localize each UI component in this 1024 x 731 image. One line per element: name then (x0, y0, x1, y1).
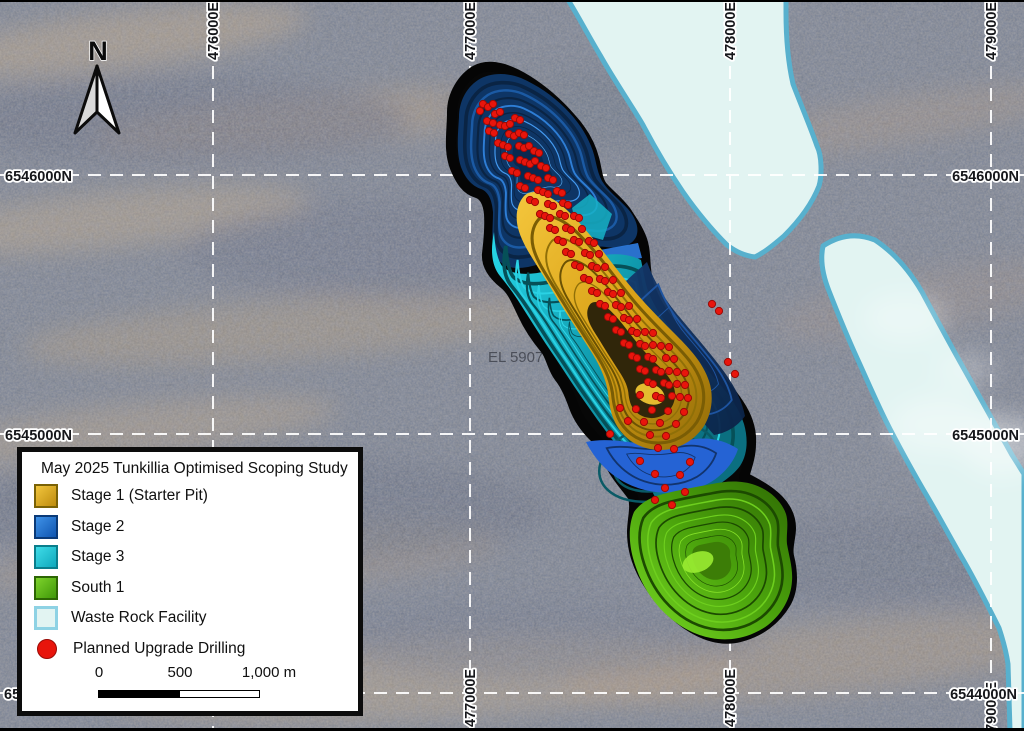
drill-point (636, 457, 643, 464)
drill-point (616, 404, 623, 411)
drill-point (476, 107, 483, 114)
tenement-label: EL 5907 (488, 349, 543, 366)
drill-point (676, 393, 683, 400)
drill-point (715, 307, 722, 314)
grid-label-northing: 6545000N (952, 428, 1019, 444)
drill-point (708, 300, 715, 307)
map-frame-top (0, 0, 1024, 2)
grid-label-northing: 6544000N (950, 687, 1017, 703)
drill-point (665, 343, 672, 350)
scale-bar-black-segment (99, 691, 179, 697)
drill-point (651, 470, 658, 477)
grid-label-northing: 6545000N (5, 428, 72, 444)
drill-point (575, 214, 582, 221)
drill-point (672, 420, 679, 427)
drill-point (521, 184, 528, 191)
drill-point (549, 202, 556, 209)
drill-point (490, 129, 497, 136)
drill-point (641, 342, 648, 349)
stage3-swatch (34, 545, 58, 569)
drill-point (670, 355, 677, 362)
north-arrow-label: N (88, 36, 108, 66)
drill-point (662, 432, 669, 439)
drill-point (625, 316, 632, 323)
drill-point (731, 370, 738, 377)
drill-point (651, 496, 658, 503)
drill-point (531, 198, 538, 205)
drill-point (662, 354, 669, 361)
drill-point (649, 355, 656, 362)
drill-point (624, 417, 631, 424)
drill-point (567, 250, 574, 257)
drill-point (544, 190, 551, 197)
drill-point (513, 169, 520, 176)
grid-label-easting: 476000E (206, 2, 222, 60)
drill-point (632, 405, 639, 412)
drill-point (633, 329, 640, 336)
drill-point (535, 149, 542, 156)
grid-label-easting: 478000E (723, 669, 739, 727)
drill-point (575, 238, 582, 245)
drill-point (590, 239, 597, 246)
drilling-swatch (37, 639, 57, 659)
south1-swatch (34, 576, 58, 600)
drill-point (558, 189, 565, 196)
scale-bar-white-segment (179, 691, 260, 697)
grid-label-northing: 6546000N (5, 169, 72, 185)
drill-point (668, 501, 675, 508)
drill-point (506, 154, 513, 161)
legend-item-label: Waste Rock Facility (71, 609, 207, 627)
drill-point (595, 250, 602, 257)
grid-label-easting: 478000E (723, 2, 739, 60)
drill-point (617, 328, 624, 335)
drill-point (640, 418, 647, 425)
drill-point (593, 264, 600, 271)
map-canvas: EL 5907 (0, 0, 1024, 731)
legend-item-wrf: Waste Rock Facility (34, 605, 207, 631)
drill-point (609, 315, 616, 322)
drill-point (625, 302, 632, 309)
drill-point (576, 263, 583, 270)
drill-point (681, 369, 688, 376)
drill-point (561, 212, 568, 219)
grid-label-easting: 477000E (463, 2, 479, 60)
drill-point (585, 276, 592, 283)
drill-point (496, 108, 503, 115)
drill-point (668, 392, 675, 399)
drill-point (676, 471, 683, 478)
scalebar-label-500: 500 (167, 664, 192, 681)
drill-point (551, 226, 558, 233)
drill-point (657, 342, 664, 349)
drill-point (531, 157, 538, 164)
drill-point (670, 445, 677, 452)
drill-point (641, 367, 648, 374)
drill-point (665, 367, 672, 374)
scalebar-label-0: 0 (95, 664, 103, 681)
drill-point (657, 368, 664, 375)
drill-point (656, 419, 663, 426)
legend-item-stage2: Stage 2 (34, 514, 124, 540)
drill-point (680, 408, 687, 415)
drill-point (617, 303, 624, 310)
scalebar-label-1000: 1,000 m (242, 664, 296, 681)
drill-point (559, 238, 566, 245)
legend-item-drilling: Planned Upgrade Drilling (34, 636, 245, 662)
drill-point (661, 484, 668, 491)
drill-point (673, 368, 680, 375)
grid-label-easting: 477000E (463, 669, 479, 727)
legend-item-stage3: Stage 3 (34, 544, 124, 570)
drill-point (641, 328, 648, 335)
legend-panel: May 2025 Tunkillia Optimised Scoping Stu… (17, 447, 363, 716)
drill-point (504, 143, 511, 150)
drill-point (633, 354, 640, 361)
drill-point (633, 315, 640, 322)
drill-point (601, 263, 608, 270)
drill-point (649, 329, 656, 336)
drill-point (609, 290, 616, 297)
legend-item-label: Stage 2 (71, 518, 124, 536)
scale-bar (98, 690, 260, 698)
drill-point (657, 394, 664, 401)
legend-item-label: South 1 (71, 579, 124, 597)
drill-point (546, 214, 553, 221)
legend-item-label: Stage 1 (Starter Pit) (71, 487, 208, 505)
drill-point (520, 131, 527, 138)
drill-point (586, 251, 593, 258)
drill-point (516, 116, 523, 123)
drill-point (593, 289, 600, 296)
drill-point (673, 380, 680, 387)
grid-label-northing: 6546000N (952, 169, 1019, 185)
drill-point (601, 302, 608, 309)
drill-point (649, 380, 656, 387)
drill-point (617, 289, 624, 296)
drill-point (564, 201, 571, 208)
drill-point (489, 119, 496, 126)
drill-point (681, 381, 688, 388)
drill-point (684, 394, 691, 401)
waste-rock-swatch (34, 606, 58, 630)
legend-title: May 2025 Tunkillia Optimised Scoping Stu… (41, 460, 348, 478)
stage2-swatch (34, 515, 58, 539)
legend-item-south1: South 1 (34, 575, 124, 601)
drill-point (649, 341, 656, 348)
drill-point (646, 431, 653, 438)
drill-point (606, 430, 613, 437)
drill-point (664, 407, 671, 414)
stage1-swatch (34, 484, 58, 508)
drill-point (681, 488, 688, 495)
drill-point (601, 277, 608, 284)
drill-point (648, 406, 655, 413)
legend-item-label: Planned Upgrade Drilling (73, 640, 245, 658)
drill-point (489, 100, 496, 107)
drill-point (636, 391, 643, 398)
drill-point (609, 276, 616, 283)
drill-point (578, 225, 585, 232)
legend-item-label: Stage 3 (71, 548, 124, 566)
drill-point (665, 381, 672, 388)
legend-item-stage1: Stage 1 (Starter Pit) (34, 483, 208, 509)
drill-point (686, 458, 693, 465)
drill-point (534, 176, 541, 183)
drill-point (567, 226, 574, 233)
grid-label-easting: 479000E (984, 2, 1000, 60)
drill-point (506, 120, 513, 127)
drill-point (724, 358, 731, 365)
drill-point (625, 341, 632, 348)
drill-point (654, 444, 661, 451)
drill-point (549, 176, 556, 183)
drill-point (542, 164, 549, 171)
